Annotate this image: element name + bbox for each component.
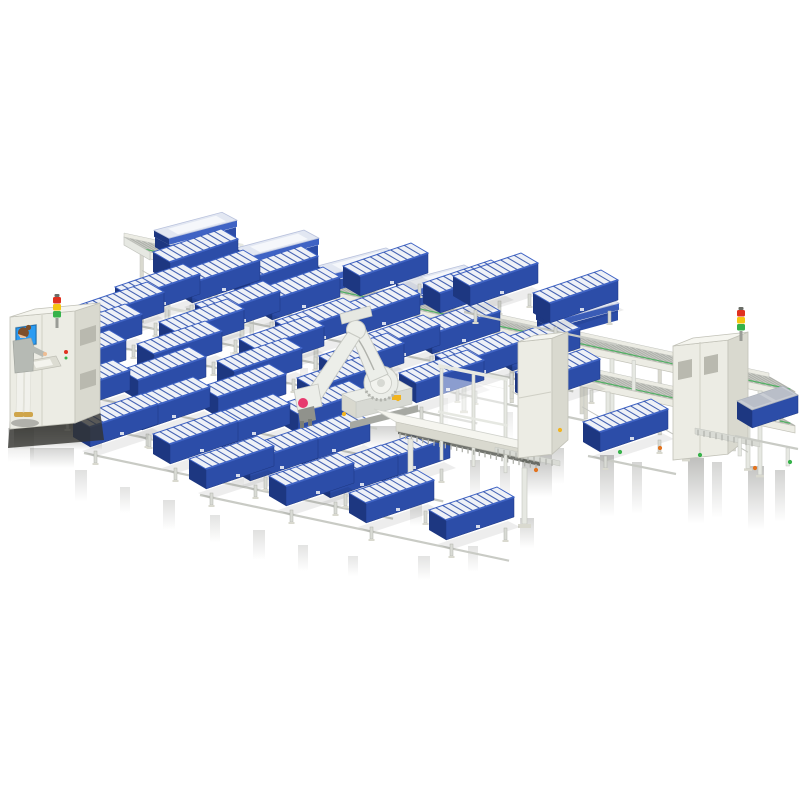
module-label [302,305,306,308]
module-label [580,308,584,311]
operator-shoe [14,412,24,417]
sensor-dot [698,453,702,457]
signal-light-red [737,310,745,317]
robot-brand-dot [298,398,308,408]
module-stand-leg [264,477,267,489]
robot-joint-hub [377,379,385,387]
module-stand-foot [209,505,215,507]
module-stand-leg [474,310,477,322]
assembly-line-render: 3D isometric render of an automated batt… [0,0,800,800]
cabinet-vent [678,359,692,380]
module-stand-leg [420,407,423,419]
module-stand-leg [234,340,237,352]
module-label [172,415,176,418]
signal-tower-cap [739,307,744,310]
module-stand-foot [343,506,349,508]
deck-connector-post [632,361,636,391]
floor-shadow-streak [688,458,704,524]
process-cabinet-a [518,332,568,458]
floor-shadow-streak [75,470,87,502]
signal-light-yellow [53,304,61,311]
module-label [476,525,480,528]
sensor-dot [618,450,622,454]
floor-shadow-streak [632,462,642,514]
floor-shadow-streak [120,487,130,513]
module-stand-foot [333,514,339,516]
operator-hair-bun [26,325,31,330]
module-stand-foot [173,480,179,482]
module-stand-foot [603,468,609,470]
conveyor-foot [744,468,752,471]
module-label [500,291,504,294]
module-label [280,466,284,469]
floor-shadow-streak [552,448,564,484]
module-label [630,437,634,440]
module-stand-foot [657,452,663,454]
module-label [120,432,124,435]
module-label [332,449,336,452]
module-stand-foot [93,463,99,465]
module-label [316,491,320,494]
table-foot [518,524,531,528]
gripper-finger [300,421,304,428]
sensor-dot [788,460,792,464]
module-stand-leg [154,323,157,335]
floor-shadow-streak [30,448,74,468]
module-stand-foot [589,402,595,404]
floor-shadow-streak [210,515,220,543]
module-stand-leg [528,294,531,306]
module-stand-foot [289,522,295,524]
module-stand-foot [449,556,455,558]
floor-shadow-streak [712,462,722,518]
signal-tower-pole [740,331,743,341]
start-button [65,357,68,360]
module-label [360,483,364,486]
signal-tower-cap [55,294,60,297]
module-label [200,449,204,452]
sensor-dot [658,446,662,450]
module-stand-leg [590,390,593,402]
process-cabinet-a-front [518,338,552,458]
gripper-finger [308,419,312,426]
module-stand-leg [344,494,347,506]
module-stand-leg [148,435,151,447]
operator-leg [16,368,24,414]
module-stand-leg [510,373,513,385]
floor-shadow-streak [418,556,430,580]
operator-leg [24,368,31,414]
operator-shadow [11,419,39,427]
signal-light-green [737,324,745,331]
module-stand-leg [210,493,213,505]
table-leg [522,468,527,524]
module-stand-leg [174,468,177,480]
module-stand-foot [369,539,375,541]
module-label [252,432,256,435]
floor-shadow-streak [298,545,308,571]
module-stand-leg [292,379,295,391]
fence-post [440,368,443,460]
module-label [396,508,400,511]
module-stand-leg [440,469,443,481]
module-stand-foot [439,481,445,483]
fence-post [504,381,507,473]
module-label [222,288,226,291]
floor-shadow-streak [253,530,265,560]
conveyor-foot [756,475,764,478]
module-label [382,322,386,325]
operator-hmi-station [8,294,104,448]
module-stand-leg [604,456,607,468]
module-stand-leg [334,502,337,514]
module-label [236,474,240,477]
floor-shadow-streak [468,546,478,572]
module-stand-leg [290,510,293,522]
module-stand-foot [509,385,515,387]
sensor-dot [753,466,757,470]
module-stand-leg [424,511,427,523]
scene-canvas: 3D isometric render of an automated batt… [0,0,800,800]
module-stand-foot [503,540,509,542]
floor-shadow-streak [163,500,175,530]
cabinet-vent [704,354,718,375]
sensor-dot [558,428,562,432]
sensor-dot [396,397,400,401]
module-label [390,281,394,284]
process-cabinet-a-side [552,332,568,454]
hmi-cabinet-side [75,303,100,423]
module-stand-foot [147,447,153,449]
module-stand-leg [504,528,507,540]
operator-jacket [13,338,34,373]
stand-leg [738,438,742,456]
module-stand-foot [131,357,137,359]
module-stand-foot [527,306,533,308]
floor-shadow-streak [775,470,785,522]
module-stand-foot [607,323,613,325]
operator-hand [43,352,47,356]
emergency-stop-button [64,350,68,354]
module-stand-leg [212,362,215,374]
signal-light-green [53,311,61,318]
battery-module [583,399,674,470]
module-stand-leg [314,357,317,369]
module-stand-foot [423,523,429,525]
signal-tower-pole [56,318,59,328]
module-stand-foot [263,489,269,491]
module-stand-foot [473,322,479,324]
module-stand-foot [211,374,217,376]
module-stand-leg [132,345,135,357]
module-stand-leg [254,485,257,497]
signal-light-red [53,297,61,304]
module-stand-leg [608,311,611,323]
module-stand-leg [370,527,373,539]
signal-light-yellow [737,317,745,324]
floor-shadow-streak [348,556,358,576]
module-stand-foot [253,497,259,499]
sensor-dot [534,468,538,472]
operator-shoe [23,412,33,417]
module-label [462,339,466,342]
module-stand-leg [450,544,453,556]
module-stand-leg [94,451,97,463]
sensor-dot [342,412,346,416]
